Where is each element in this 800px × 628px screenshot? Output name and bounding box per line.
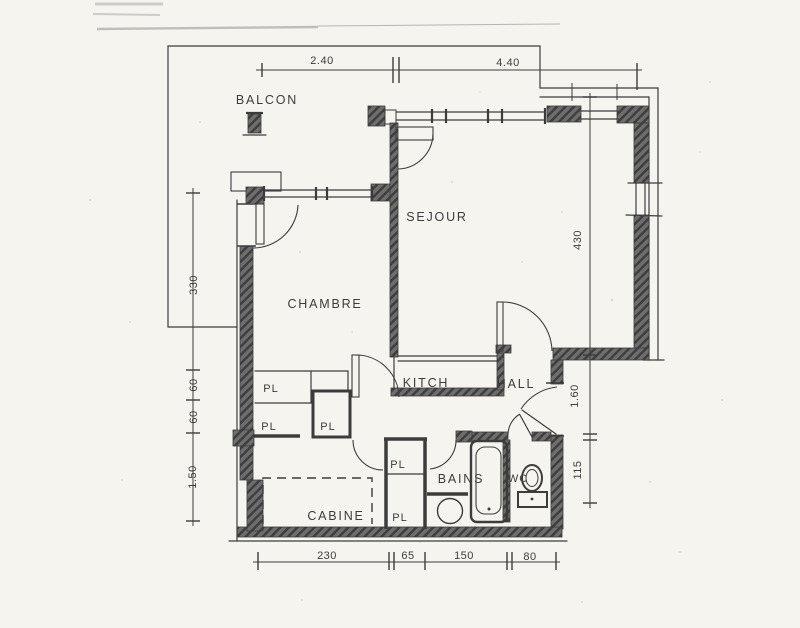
wall-left-lower [240,446,253,480]
wall-left [240,246,253,430]
wall-pier [233,430,254,446]
dim-left: 330 60 60 1.50 [186,188,200,526]
floorplan-page: 2.40 4.40 330 60 60 1.50 430 1.60 115 [0,0,800,628]
wall-entry-upper [551,360,563,384]
wall-bottom [237,527,562,537]
dim-label: 4.40 [496,57,519,69]
floor-plan-canvas: 2.40 4.40 330 60 60 1.50 430 1.60 115 [0,0,800,628]
closet-label: PL [320,421,335,433]
wall-sejour-bottom [553,348,649,360]
sejour-corner-window [581,111,618,119]
wall-entry-lower [551,435,563,529]
room-label-cabine: CABINE [307,509,364,523]
dim-label: 60 [188,378,200,391]
wall-left-bottom [247,480,263,531]
room-label-kitch: KITCH [403,376,450,390]
wall-right-mid [634,215,649,352]
dim-label: 60 [188,410,200,423]
room-label-hall: HALL [497,377,535,391]
windows [264,108,662,216]
closet-label: PL [390,459,405,471]
room-label-balcon: BALCON [236,93,298,107]
wc-door [508,414,532,437]
dim-label: 65 [401,550,414,562]
kitchen-counter [398,356,497,361]
dim-label: 115 [572,460,584,479]
hall-sejour-door [497,302,552,351]
closet-label: PL [261,421,276,433]
corridor-door [353,440,383,470]
wall-corner [617,106,649,123]
wall-partition [390,123,398,357]
balcony-outline [168,46,540,327]
room-label-chambre: CHAMBRE [287,297,362,311]
closet-label: PL [392,512,407,524]
sejour-balcony-door [396,127,433,169]
dim-right: 430 1.60 115 [569,93,597,508]
sejour-right-window [626,183,662,216]
dim-label: 1.60 [569,384,581,407]
dim-label: 230 [317,550,337,562]
dim-label: 330 [188,275,200,295]
dim-label: 1.50 [187,465,199,488]
wall-wc-top [532,432,551,441]
sejour-window [396,108,545,124]
door-jamb [385,110,396,124]
bains-door [430,440,456,469]
wall-pier [368,106,385,126]
room-label-sejour: SEJOUR [406,210,468,224]
dim-label: 430 [572,230,584,250]
wall-right-upper [634,123,649,183]
chambre-window [264,186,372,201]
room-label-wc: WC [508,473,528,485]
dim-label: 150 [454,550,474,562]
wall-pier [547,106,581,122]
wall-pier [246,187,264,204]
dim-bottom: 230 65 150 80 [253,550,560,570]
paper-speckles [89,81,723,603]
wall-pier [456,431,472,442]
dim-label: 80 [523,551,536,563]
dim-top: 2.40 4.40 [256,55,642,90]
washbasin [427,494,468,524]
toilet [518,465,547,507]
chambre-balcony-door [253,204,298,248]
room-label-bains: BAINS [438,472,485,486]
balcony-pier [243,113,266,135]
dim-label: 2.40 [310,55,333,67]
wall-pier [371,184,391,201]
closet-label: PL [263,383,278,395]
